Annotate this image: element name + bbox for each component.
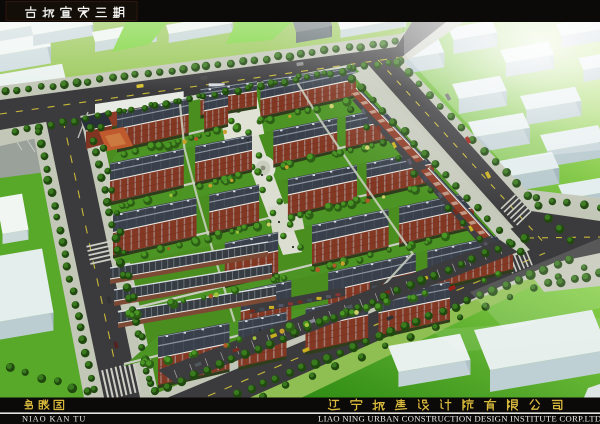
svg-text:LIAO NING URBAN CONSTRUCTION D: LIAO NING URBAN CONSTRUCTION DESIGN INST… [318, 414, 600, 424]
svg-text:NIAO KAN TU: NIAO KAN TU [22, 415, 86, 424]
